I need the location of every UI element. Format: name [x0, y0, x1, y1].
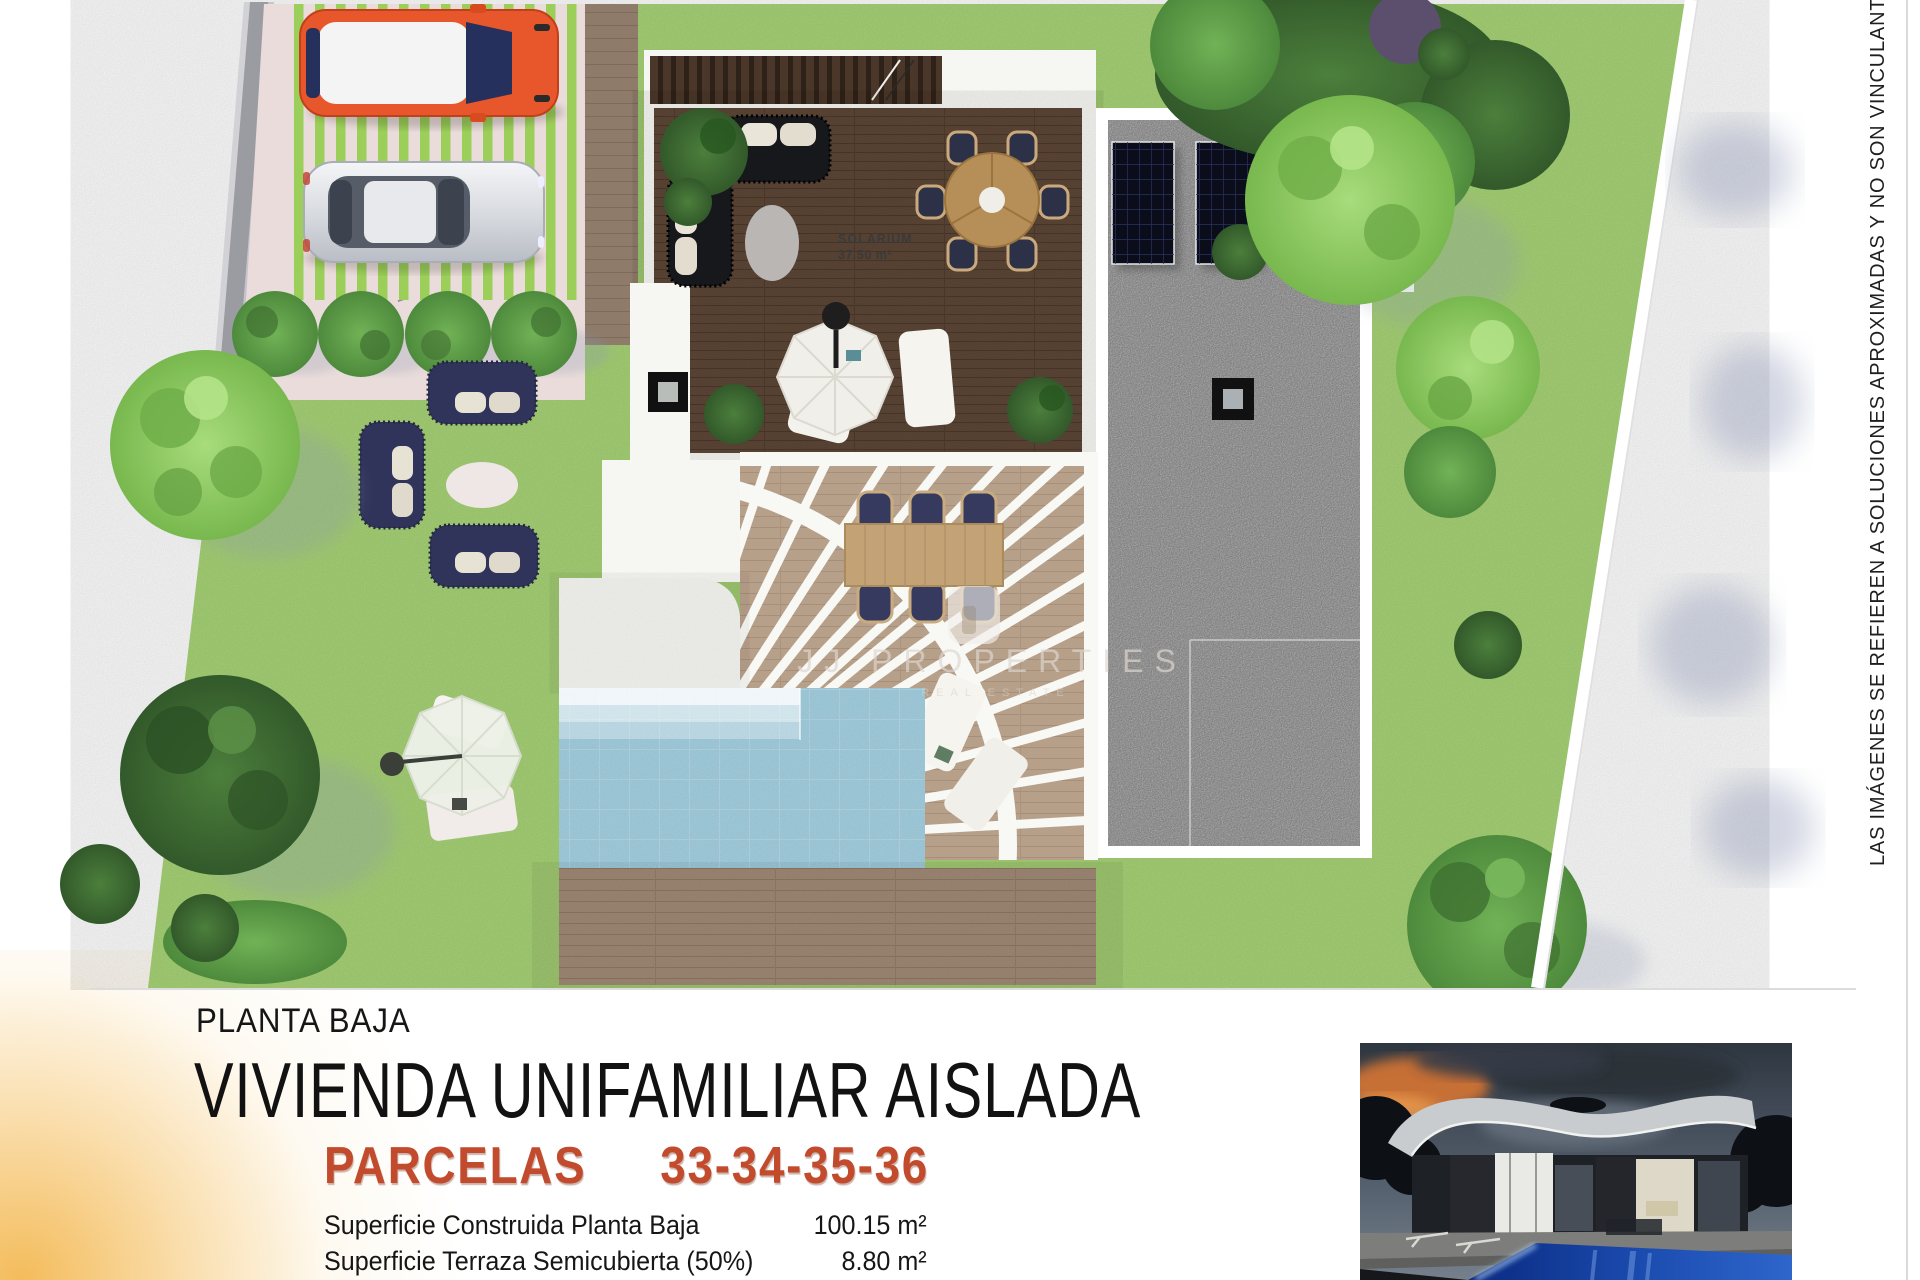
cloud-shadows: [1650, 122, 1814, 878]
surface-value: 8.80 m²: [842, 1243, 927, 1279]
sheet-edge-line: [1906, 0, 1908, 1280]
deck-rug: [745, 205, 799, 281]
watermark-subtitle: REAL ESTATE: [921, 687, 1071, 699]
villa-night-photo: [1360, 1043, 1792, 1280]
parcels-numbers: 33-34-35-36: [660, 1136, 929, 1196]
page-title: VIVIENDA UNIFAMILIAR AISLADA: [194, 1050, 1141, 1132]
surface-row: Superficie Terraza Semicubierta (50%) 8.…: [324, 1243, 927, 1279]
villa-building: [1388, 1096, 1756, 1235]
surface-table: Superficie Construida Planta Baja 100.15…: [324, 1207, 927, 1279]
pool: [559, 688, 925, 868]
disclaimer-note: LAS IMÁGENES SE REFIEREN A SOLUCIONES AP…: [1866, 0, 1889, 866]
parcels-row: PARCELAS 33-34-35-36: [324, 1136, 929, 1196]
real-estate-plan-sheet: SOLARIUM 37.50 m²: [0, 0, 1920, 1280]
pool-beach: [559, 578, 740, 688]
roof-drain: [1212, 378, 1254, 420]
deck-floor-light: [648, 372, 688, 412]
surface-row: Superficie Construida Planta Baja 100.15…: [324, 1207, 927, 1243]
solarium-label: SOLARIUM: [838, 232, 913, 246]
parcels-label: PARCELAS: [324, 1136, 586, 1196]
site-plan: SOLARIUM 37.50 m²: [0, 0, 1920, 990]
solarium-area: 37.50 m²: [838, 248, 892, 262]
surface-label: Superficie Terraza Semicubierta (50%): [324, 1243, 753, 1279]
surface-label: Superficie Construida Planta Baja: [324, 1207, 699, 1243]
watermark-title: JJ PROPERTIES: [797, 643, 1187, 679]
bush-row: [232, 291, 609, 377]
surface-value: 100.15 m²: [814, 1207, 927, 1243]
silver-car: [303, 162, 544, 273]
floor-label: PLANTA BAJA: [196, 1002, 411, 1041]
orange-car: [300, 4, 564, 128]
